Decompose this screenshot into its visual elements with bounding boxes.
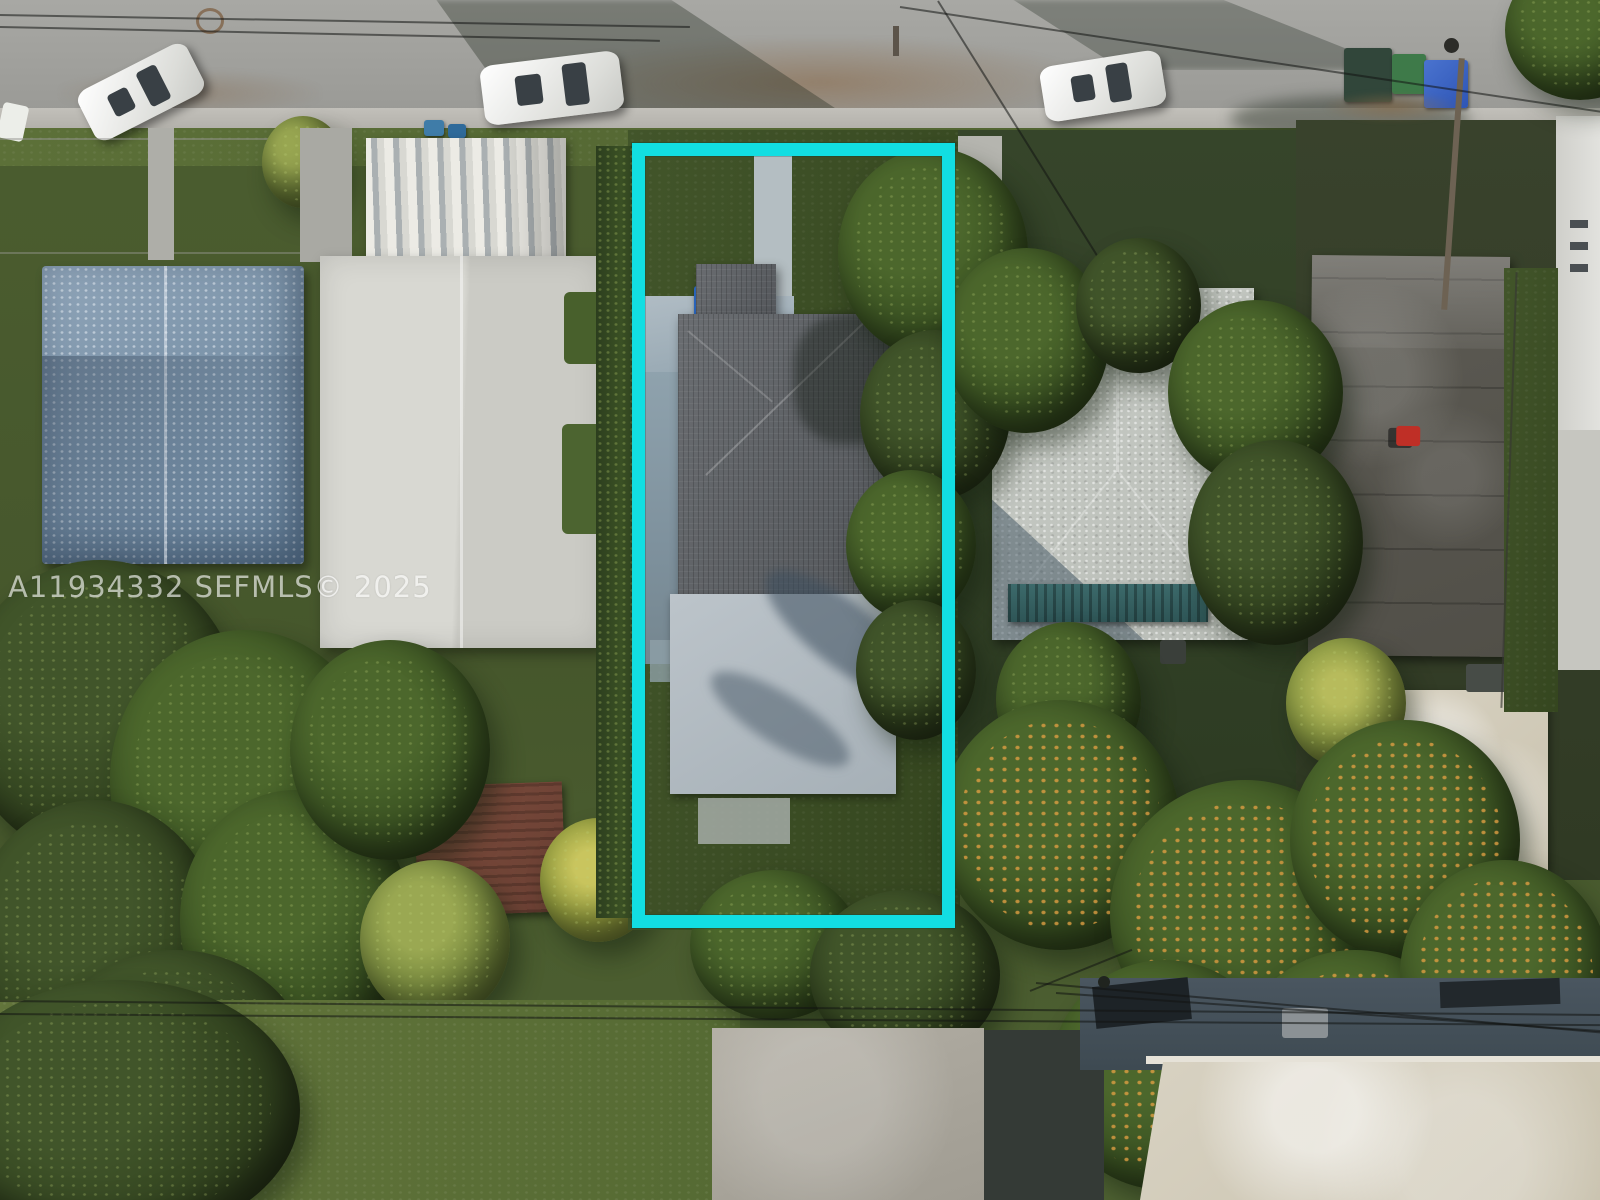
car-sunroof <box>1070 74 1096 103</box>
utility-pole-top-center <box>893 26 899 56</box>
tarp-covered-roof-building <box>42 266 304 564</box>
right-edge-building-lower <box>1556 430 1600 670</box>
car-windshield <box>135 64 172 108</box>
blue-bin-curb-1 <box>424 120 444 136</box>
roof-ridge-line <box>460 256 463 648</box>
property-boundary-outline <box>632 143 955 928</box>
tarp-shadow-half <box>42 356 304 564</box>
blue-bin-curb-2 <box>448 124 466 138</box>
watermark: A11934332 SEFMLS© 2025 <box>8 570 432 604</box>
tree-canopy-bright <box>360 860 510 1020</box>
streetlamp-head <box>1444 38 1459 53</box>
building-window-marks <box>1570 212 1588 272</box>
curb-debris <box>1326 92 1456 122</box>
red-object-on-roof <box>1396 426 1420 446</box>
car-windshield <box>561 62 590 107</box>
corrugated-carport-roof <box>366 138 566 256</box>
shared-driveway-strip <box>300 128 352 262</box>
tree-canopy <box>290 640 490 860</box>
dark-roof-patch <box>1440 978 1561 1008</box>
teal-awning <box>1008 584 1208 622</box>
carport-shade <box>502 138 566 256</box>
power-pole-bottom <box>1098 976 1110 988</box>
car-sunroof <box>514 73 543 106</box>
dark-roof-upper-band <box>1311 255 1510 349</box>
bottom-concrete-pad <box>712 1028 984 1200</box>
bottom-building-pale-roof <box>1140 1062 1600 1200</box>
big-tree-right <box>1188 440 1363 645</box>
patio-box <box>1160 640 1186 664</box>
street-bin-green <box>1392 54 1426 94</box>
car-sunroof <box>106 86 136 117</box>
aerial-photo-scene: A11934332 SEFMLS© 2025 <box>0 0 1600 1200</box>
left-front-walkway <box>148 128 174 260</box>
car-windshield <box>1105 62 1133 103</box>
alley-grass-strip <box>1504 268 1558 712</box>
